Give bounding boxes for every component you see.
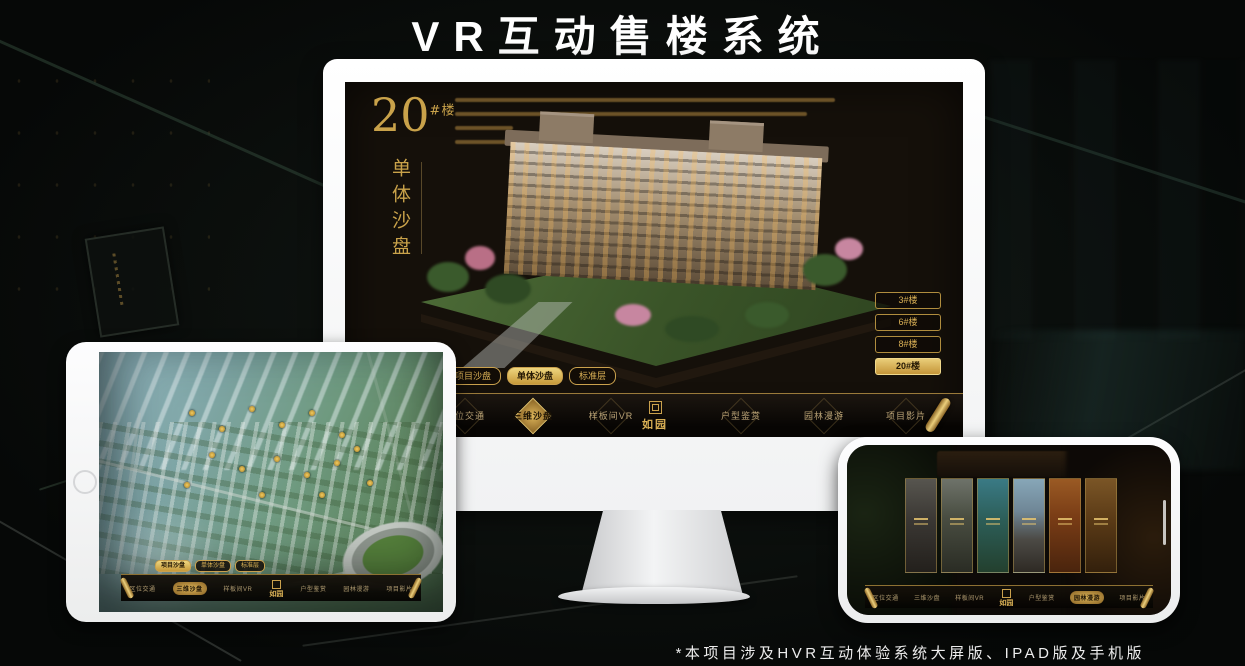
building-facade (504, 142, 822, 290)
description-line (455, 98, 835, 102)
nav-item-floorplan[interactable]: 户型鉴赏 (300, 584, 326, 593)
scene-panel-residence[interactable] (1013, 478, 1045, 573)
bush (665, 316, 719, 342)
scene-panel-autumn-court[interactable] (1049, 478, 1081, 573)
vignette (99, 352, 443, 612)
nav-item-3d-sandtable[interactable]: 三维沙盘 (914, 593, 940, 602)
footnote: *本项目涉及HVR互动体验系统大屏版、IPAD版及手机版 (676, 642, 1145, 663)
building-selector: 3#楼 6#楼 8#楼 20#楼 (875, 292, 941, 380)
building-button-20[interactable]: 20#楼 (875, 358, 941, 375)
flower-bush (835, 238, 863, 260)
seal-icon (649, 401, 662, 414)
bush (803, 254, 847, 286)
app-logo: 如园 (999, 589, 1013, 606)
backdrop-plaque (85, 226, 180, 337)
tablet-home-button[interactable] (73, 470, 97, 494)
nav-item-project-film[interactable]: 项目影片 (386, 584, 412, 593)
bush (745, 302, 789, 328)
description-line (455, 126, 513, 130)
tab-standard-floor[interactable]: 标准层 (569, 367, 616, 385)
app-logo: 如园 (269, 580, 283, 597)
description-line (455, 112, 807, 116)
tab-single-sandtable[interactable]: 单体沙盘 (507, 367, 563, 385)
device-tablet: 项目沙盘 单体沙盘 标准层 区位交通 三维沙盘 样板间VR 如园 户型鉴赏 园林… (66, 342, 456, 622)
nav-item-garden-tour[interactable]: 园林漫游 (1070, 591, 1104, 604)
apartment-building (504, 142, 822, 290)
bush (485, 274, 531, 304)
nav-item-floorplan[interactable]: 户型鉴赏 (712, 394, 770, 437)
scene-panel-garden-tower[interactable] (977, 478, 1009, 573)
nav-item-showroom-vr[interactable]: 样板间VR (955, 593, 984, 602)
scene-panel-gate[interactable] (905, 478, 937, 573)
tablet-screen: 项目沙盘 单体沙盘 标准层 区位交通 三维沙盘 样板间VR 如园 户型鉴赏 园林… (99, 352, 443, 612)
building-render (415, 134, 915, 386)
tablet-subtab-bar: 项目沙盘 单体沙盘 标准层 (155, 560, 265, 572)
nav-item-garden-tour[interactable]: 园林漫游 (795, 394, 853, 437)
page-title: VR互动售楼系统 (0, 3, 1245, 64)
flower-bush (465, 246, 495, 270)
roof-tower (709, 120, 764, 152)
earpiece-slot (1163, 500, 1166, 545)
building-button-6[interactable]: 6#楼 (875, 314, 941, 331)
nav-item-garden-tour[interactable]: 园林漫游 (343, 584, 369, 593)
tab-single-sandtable[interactable]: 单体沙盘 (195, 560, 231, 572)
scene-panel-strip (905, 478, 1118, 573)
nav-item-3d-sandtable[interactable]: 三维沙盘 (173, 582, 207, 595)
scroll-handle-icon[interactable] (933, 396, 943, 434)
block-subtitle-vertical: 单体沙盘 (387, 158, 414, 262)
flower-bush (615, 304, 651, 326)
nav-item-location[interactable]: 区位交通 (873, 593, 899, 602)
subtab-bar: 项目沙盘 单体沙盘 标准层 (445, 367, 616, 385)
scene-panel-living-room[interactable] (941, 478, 973, 573)
bush (427, 262, 469, 292)
phone-screen: 区位交通 三维沙盘 样板间VR 如园 户型鉴赏 园林漫游 项目影片 (847, 445, 1171, 615)
building-button-8[interactable]: 8#楼 (875, 336, 941, 353)
nav-item-showroom-vr[interactable]: 样板间VR (224, 584, 253, 593)
roof-tower (539, 111, 594, 143)
monitor-stand-base (558, 587, 750, 604)
tablet-navbar: 区位交通 三维沙盘 样板间VR 如园 户型鉴赏 园林漫游 项目影片 (121, 574, 421, 601)
scene-panel-display-wall[interactable] (1085, 478, 1117, 573)
app-logo: 如园 (630, 396, 680, 432)
building-button-3[interactable]: 3#楼 (875, 292, 941, 309)
nav-item-floorplan[interactable]: 户型鉴赏 (1029, 593, 1055, 602)
phone-navbar: 区位交通 三维沙盘 样板间VR 如园 户型鉴赏 园林漫游 项目影片 (865, 585, 1153, 608)
seal-icon (272, 580, 281, 589)
backdrop-buildings-right (990, 60, 1245, 340)
nav-item-location[interactable]: 区位交通 (130, 584, 156, 593)
page: VR互动售楼系统 20#楼 单体沙盘 (0, 0, 1245, 666)
nav-item-3d-sandtable[interactable]: 三维沙盘 (504, 394, 562, 437)
tab-standard-floor[interactable]: 标准层 (235, 560, 265, 572)
seal-icon (1002, 589, 1011, 598)
monitor-stand-neck (578, 510, 746, 594)
tab-project-sandtable[interactable]: 项目沙盘 (155, 560, 191, 572)
device-phone: 区位交通 三维沙盘 样板间VR 如园 户型鉴赏 园林漫游 项目影片 (838, 437, 1180, 623)
block-number-title: 20#楼 (371, 92, 455, 138)
